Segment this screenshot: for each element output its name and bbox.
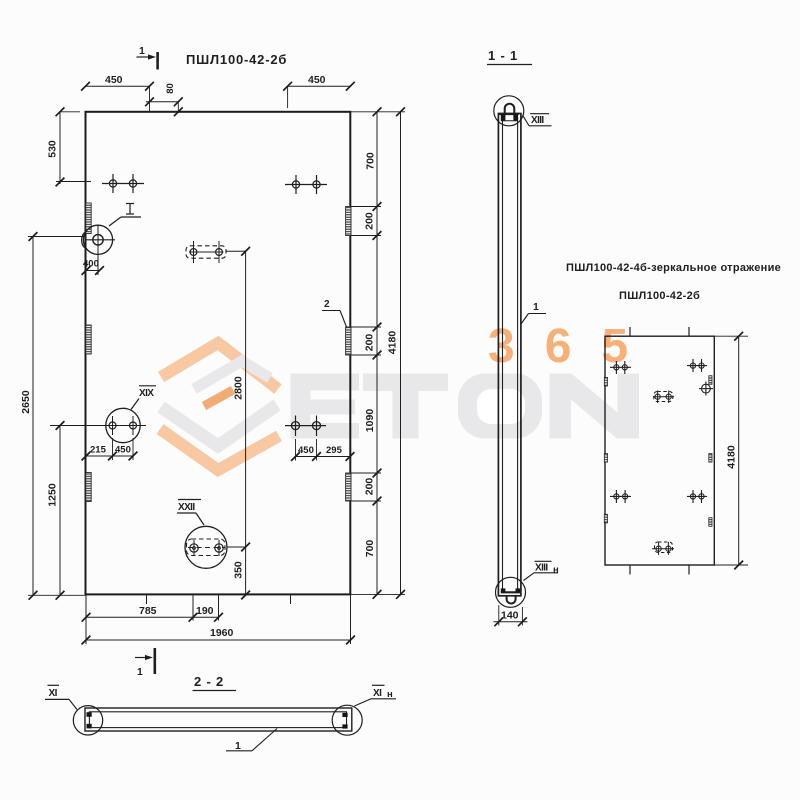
svg-text:XIII: XIII	[535, 563, 548, 574]
svg-text:XI: XI	[373, 688, 382, 699]
svg-text:400: 400	[83, 259, 99, 270]
svg-text:н: н	[553, 565, 559, 576]
svg-text:ПШЛ100-42-2б: ПШЛ100-42-2б	[186, 52, 287, 67]
svg-text:2: 2	[324, 299, 330, 310]
svg-text:200: 200	[363, 478, 375, 496]
svg-text:450: 450	[298, 445, 314, 456]
svg-text:XIX: XIX	[139, 388, 154, 399]
svg-text:190: 190	[196, 605, 214, 617]
svg-text:530: 530	[46, 140, 58, 158]
svg-text:1: 1	[533, 301, 539, 313]
svg-text:1: 1	[137, 666, 143, 678]
svg-text:365: 365	[488, 320, 658, 373]
svg-text:450: 450	[105, 74, 123, 86]
svg-text:2650: 2650	[20, 390, 32, 414]
svg-text:4180: 4180	[725, 445, 737, 469]
svg-text:4180: 4180	[386, 331, 398, 355]
svg-text:1: 1	[235, 740, 241, 752]
svg-text:ПШЛ100-42-4б-зеркальное отраже: ПШЛ100-42-4б-зеркальное отражение	[566, 262, 781, 274]
svg-text:XXII: XXII	[178, 502, 195, 513]
svg-text:200: 200	[363, 212, 375, 230]
svg-text:XI: XI	[49, 688, 58, 699]
svg-text:140: 140	[501, 610, 519, 622]
svg-text:200: 200	[363, 334, 375, 352]
svg-text:215: 215	[90, 445, 107, 456]
svg-text:785: 785	[139, 605, 157, 617]
svg-text:450: 450	[115, 445, 131, 456]
svg-text:1: 1	[139, 45, 145, 57]
svg-text:XIII: XIII	[531, 115, 544, 126]
svg-text:1250: 1250	[46, 483, 58, 507]
svg-text:295: 295	[326, 445, 343, 456]
svg-text:ПШЛ100-42-2б: ПШЛ100-42-2б	[619, 290, 700, 302]
svg-text:1 - 1: 1 - 1	[488, 48, 518, 63]
svg-text:700: 700	[364, 540, 376, 558]
svg-text:1090: 1090	[364, 409, 376, 433]
svg-text:450: 450	[308, 74, 326, 86]
svg-text:80: 80	[165, 83, 176, 94]
svg-text:2800: 2800	[232, 376, 244, 400]
svg-text:1960: 1960	[210, 627, 234, 639]
svg-text:700: 700	[364, 152, 376, 170]
svg-text:350: 350	[232, 561, 244, 579]
svg-text:2 - 2: 2 - 2	[194, 674, 224, 689]
